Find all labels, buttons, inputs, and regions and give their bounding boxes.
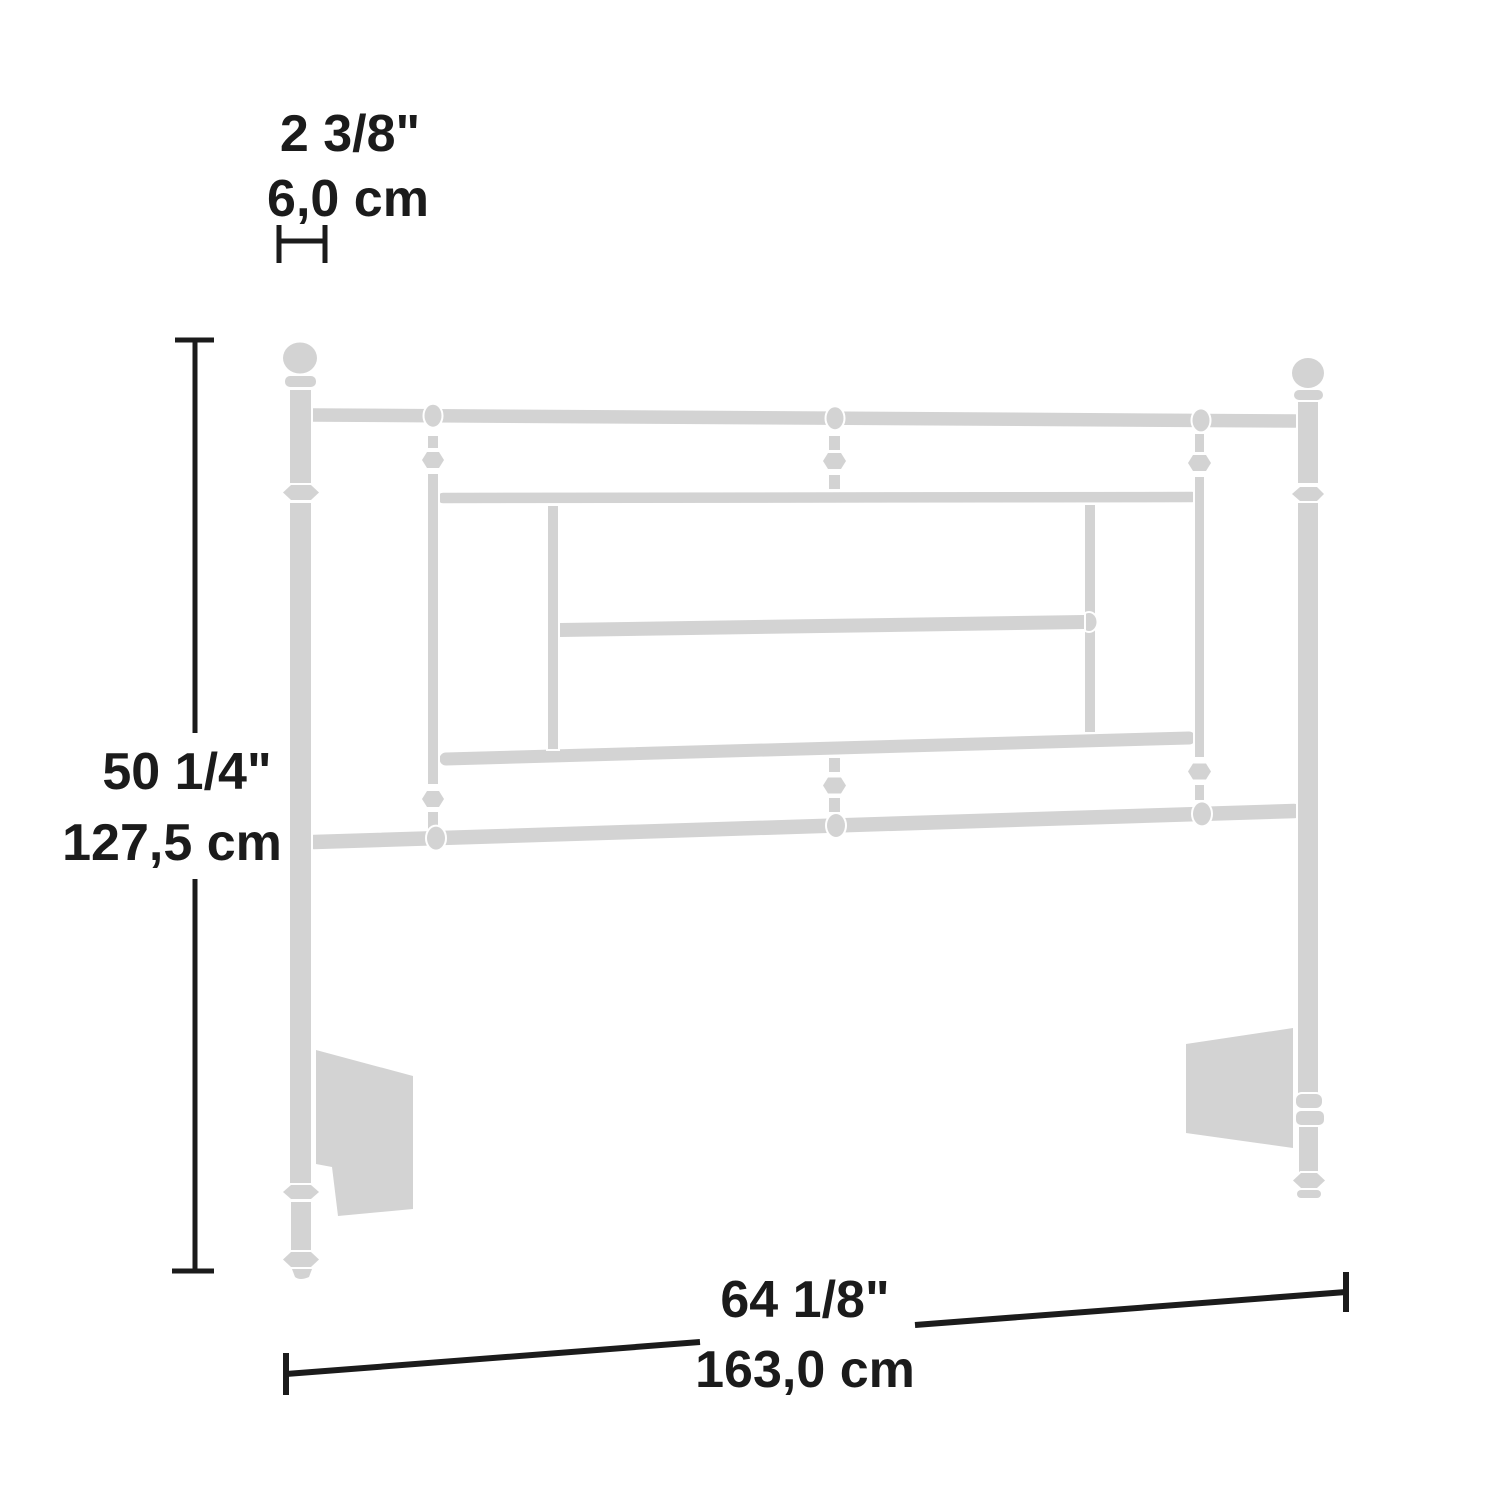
left-post — [283, 343, 319, 1280]
inner-panel — [548, 505, 1097, 749]
right-post-collar — [1294, 390, 1323, 400]
width-inches-label: 64 1/8" — [720, 1271, 889, 1329]
right-post — [1292, 358, 1325, 1198]
post-width-cm-label: 6,0 cm — [267, 170, 429, 228]
center-spindle-upper-stub2 — [829, 475, 840, 489]
bottom-rail — [314, 811, 1294, 842]
top-rail-right-joint — [1193, 409, 1210, 431]
left-post-collar — [285, 376, 316, 387]
left-spindle-upper-stub — [428, 436, 438, 448]
height-inches-label: 50 1/4" — [102, 743, 271, 801]
left-post-foot-segment — [291, 1202, 311, 1251]
center-spindle-upper-bead — [823, 453, 846, 469]
bottom-rail-left-joint — [427, 827, 445, 850]
left-spindle-lower-bead — [422, 791, 444, 807]
post-width-inches-label: 2 3/8" — [280, 105, 420, 163]
left-post-upper-segment — [290, 390, 311, 484]
right-post-upper-segment — [1298, 402, 1318, 483]
right-post-ball-finial — [1292, 358, 1324, 388]
right-post-lower-ring-a — [1296, 1094, 1322, 1108]
center-spindle-lower-stub — [829, 758, 840, 772]
left-post-main-segment — [290, 503, 311, 1185]
left-post-foot-ring — [283, 1252, 319, 1267]
height-dimension-line — [172, 340, 214, 1271]
width-cm-label: 163,0 cm — [695, 1341, 915, 1399]
top-rail-left-joint — [425, 405, 442, 427]
bottom-rail-center-joint — [827, 814, 845, 837]
bottom-rail-right-joint — [1193, 802, 1211, 825]
left-post-lower-ring — [283, 1185, 319, 1199]
right-mounting-bracket — [1186, 1028, 1293, 1148]
right-post-foot-ring — [1293, 1173, 1325, 1188]
left-spindle-shaft — [428, 474, 438, 784]
right-spindle-lower-bead — [1188, 764, 1211, 780]
center-spindle-upper-stub — [829, 436, 840, 450]
left-post-ring — [283, 485, 319, 500]
left-spindle-upper-bead — [422, 452, 444, 468]
right-spindle-upper-stub — [1195, 434, 1204, 452]
right-spindle-shaft — [1195, 477, 1204, 757]
left-post-ball-finial — [283, 343, 317, 374]
inner-panel-middle-bar — [560, 615, 1084, 637]
post-width-dimension-bracket — [279, 225, 325, 263]
right-post-foot-segment — [1299, 1127, 1318, 1172]
dimension-diagram: 2 3/8" 6,0 cm 50 1/4" 127,5 cm 64 1/8" 1… — [0, 0, 1500, 1500]
right-post-foot-cap — [1297, 1190, 1321, 1198]
right-spindle-lower-stub — [1195, 785, 1204, 800]
left-post-foot-cap — [292, 1269, 312, 1279]
right-post-main-segment — [1298, 503, 1318, 1093]
inner-panel-left-bar — [548, 506, 558, 749]
height-cm-label: 127,5 cm — [62, 814, 282, 872]
right-spindle-upper-bead — [1188, 455, 1211, 471]
right-post-lower-ring-b — [1296, 1111, 1324, 1125]
top-rail-center-joint — [827, 407, 844, 429]
left-mounting-bracket — [316, 1050, 413, 1216]
right-post-ring — [1292, 487, 1324, 501]
headboard-dimension-drawing: 2 3/8" 6,0 cm 50 1/4" 127,5 cm 64 1/8" 1… — [0, 0, 1500, 1500]
right-spindle — [1188, 434, 1211, 800]
center-spindle-lower-bead — [823, 778, 846, 794]
top-rail — [313, 415, 1295, 421]
center-spindle-lower-stub2 — [829, 798, 840, 812]
headboard-figure — [283, 343, 1325, 1280]
second-rail — [443, 497, 1192, 498]
